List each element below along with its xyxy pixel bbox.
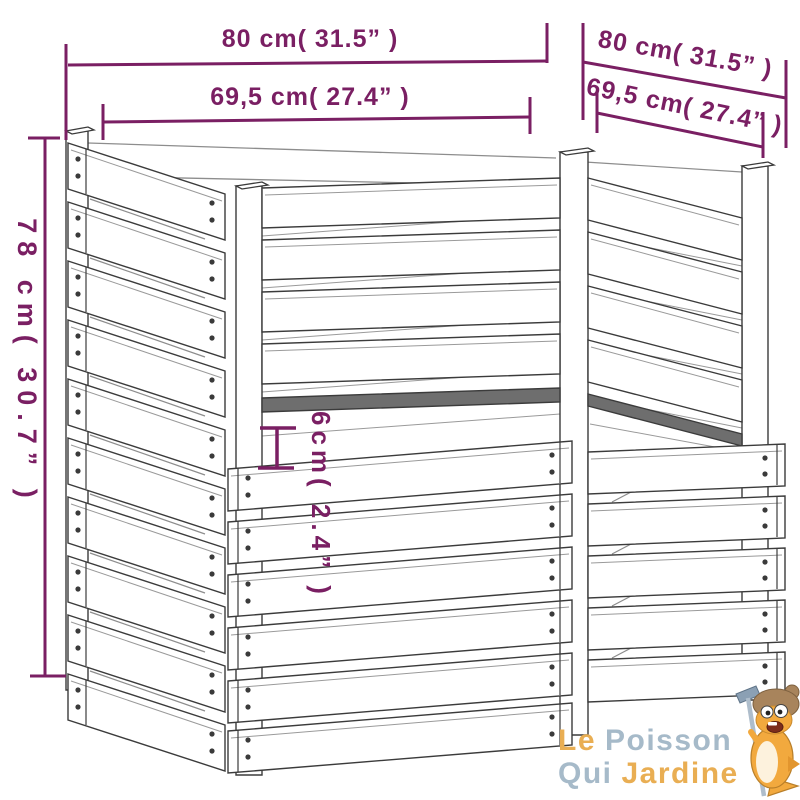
screw-dot: [75, 628, 80, 633]
right-lower-slat: [588, 600, 785, 650]
screw-dot: [762, 627, 767, 632]
screw-dot: [549, 469, 554, 474]
mascot-teeth: [768, 722, 777, 726]
dim-line-inner-width: [103, 117, 530, 122]
screw-dot: [209, 495, 214, 500]
screw-dot: [762, 455, 767, 460]
screw-dot: [75, 409, 80, 414]
logo-word-poisson: Poisson: [605, 724, 732, 757]
back-top-rail: [88, 143, 556, 158]
logo-mascot-icon: [734, 682, 800, 800]
screenshot-stage: 80 cm( 31.5” ) 80 cm( 31.5” ) 69,5 cm( 2…: [0, 0, 800, 800]
screw-dot: [75, 527, 80, 532]
screw-dot: [75, 333, 80, 338]
screw-dot: [209, 200, 214, 205]
logo-word-jardine: Jardine: [622, 757, 739, 790]
screw-dot: [75, 510, 80, 515]
screw-dot: [762, 611, 767, 616]
screw-dot: [75, 215, 80, 220]
screw-dot: [549, 731, 554, 736]
screw-dot: [245, 545, 250, 550]
screw-dot: [549, 558, 554, 563]
screw-dot: [75, 156, 80, 161]
screw-dot: [762, 523, 767, 528]
dim-line-overall-width: [68, 61, 547, 65]
screw-dot: [75, 392, 80, 397]
screw-dot: [245, 598, 250, 603]
screw-dot: [75, 274, 80, 279]
front-upper-slat: [262, 178, 560, 228]
screw-dot: [762, 507, 767, 512]
screw-dot: [209, 453, 214, 458]
back-right-post-cap: [742, 162, 774, 169]
brand-logo: LePoisson QuiJardine: [558, 724, 748, 790]
mascot-pupil: [766, 711, 771, 716]
screw-dot: [245, 492, 250, 497]
screw-dot: [245, 634, 250, 639]
screw-dot: [75, 569, 80, 574]
mascot-pupil: [778, 710, 783, 715]
logo-word-qui: Qui: [558, 757, 613, 790]
screw-dot: [75, 173, 80, 178]
screw-dot: [209, 731, 214, 736]
right-lower-slat: [588, 444, 785, 494]
screw-dot: [209, 276, 214, 281]
screw-dot: [245, 475, 250, 480]
screw-dot: [245, 704, 250, 709]
screw-dot: [209, 630, 214, 635]
overall-depth-label: 80 cm( 31.5” ): [596, 25, 775, 83]
screw-dot: [245, 754, 250, 759]
screw-dot: [209, 571, 214, 576]
screw-dot: [209, 335, 214, 340]
screw-dot: [245, 581, 250, 586]
inner-width-label: 69,5 cm( 27.4” ): [210, 83, 409, 111]
composter-dimension-diagram: 80 cm( 31.5” ) 80 cm( 31.5” ) 69,5 cm( 2…: [0, 0, 800, 800]
front-module-rim: [262, 388, 560, 412]
composter-drawing: [66, 127, 785, 775]
front-upper-slat: [262, 230, 560, 280]
screw-dot: [549, 505, 554, 510]
screw-dot: [549, 628, 554, 633]
mascot-arm: [751, 732, 758, 742]
screw-dot: [549, 664, 554, 669]
logo-word-le: Le: [558, 724, 596, 757]
screw-dot: [209, 672, 214, 677]
screw-dot: [549, 611, 554, 616]
screw-dot: [209, 318, 214, 323]
logo-line-2: QuiJardine: [558, 757, 748, 790]
overall-width-label: 80 cm( 31.5” ): [222, 25, 399, 53]
screw-dot: [549, 452, 554, 457]
logo-line-1: LePoisson: [558, 724, 748, 757]
screw-dot: [75, 350, 80, 355]
screw-dot: [209, 748, 214, 753]
right-lower-slat: [588, 496, 785, 546]
screw-dot: [209, 554, 214, 559]
screw-dot: [245, 687, 250, 692]
right-lower-slat: [588, 548, 785, 598]
screw-dot: [549, 681, 554, 686]
screw-dot: [762, 559, 767, 564]
back-top-rail-right: [585, 162, 742, 172]
screw-dot: [75, 468, 80, 473]
screw-dot: [549, 575, 554, 580]
front-upper-slat: [262, 334, 560, 384]
screw-dot: [209, 613, 214, 618]
screw-dot: [209, 512, 214, 517]
screw-dot: [549, 714, 554, 719]
screw-dot: [209, 377, 214, 382]
screw-dot: [209, 217, 214, 222]
screw-dot: [75, 586, 80, 591]
screw-dot: [245, 737, 250, 742]
screw-dot: [75, 451, 80, 456]
screw-dot: [75, 704, 80, 709]
overall-height-label: 78 cm( 30.7” ): [12, 218, 42, 506]
mascot-belly: [756, 741, 778, 783]
screw-dot: [762, 471, 767, 476]
screw-dot: [209, 259, 214, 264]
mascot-fin: [788, 756, 800, 772]
screw-dot: [549, 522, 554, 527]
screw-dot: [75, 291, 80, 296]
back-left-post-cap: [66, 127, 94, 134]
front-upper-slat: [262, 282, 560, 332]
screw-dot: [209, 689, 214, 694]
screw-dot: [75, 687, 80, 692]
screw-dot: [245, 528, 250, 533]
screw-dot: [209, 436, 214, 441]
screw-dot: [209, 394, 214, 399]
slat-gap-label: 6cm( 2.4” ): [306, 411, 336, 599]
screw-dot: [762, 663, 767, 668]
screw-dot: [245, 651, 250, 656]
front-right-post-cap: [560, 148, 594, 155]
screw-dot: [75, 645, 80, 650]
screw-dot: [762, 575, 767, 580]
screw-dot: [75, 232, 80, 237]
